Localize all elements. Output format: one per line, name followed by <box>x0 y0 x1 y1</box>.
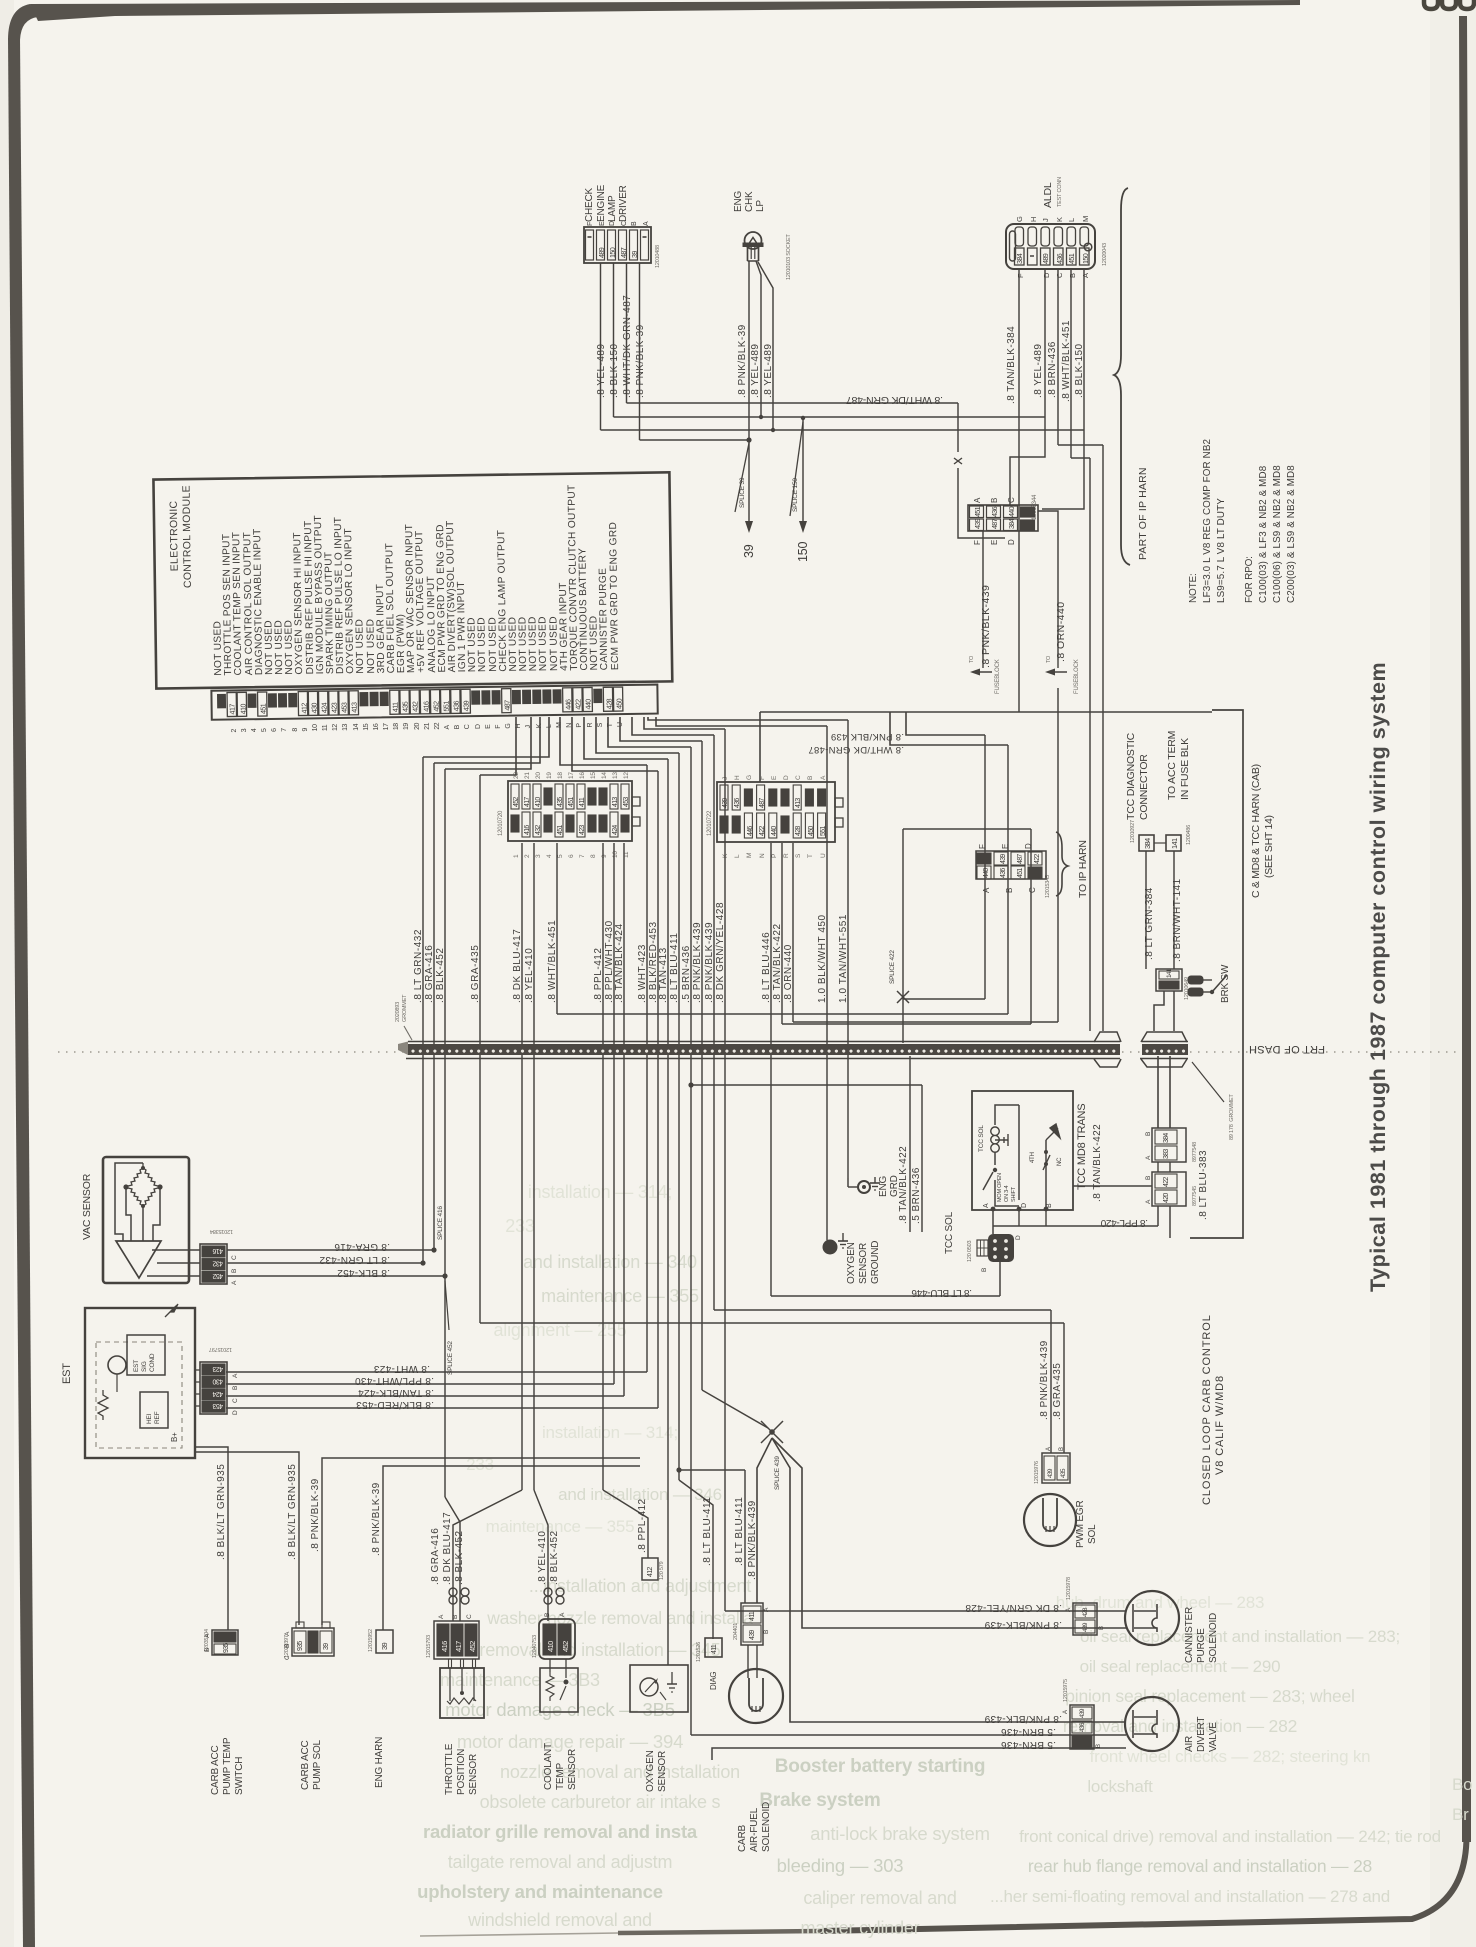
svg-text:39: 39 <box>742 544 756 558</box>
svg-text:B: B <box>1099 1626 1105 1630</box>
svg-text:10: 10 <box>312 724 319 731</box>
svg-text:150: 150 <box>796 541 810 562</box>
svg-text:12040753: 12040753 <box>532 1635 538 1658</box>
svg-text:AIR-FUEL: AIR-FUEL <box>749 1807 760 1852</box>
svg-text:.8 YEL-489: .8 YEL-489 <box>1033 344 1044 398</box>
svg-text:436: 436 <box>734 798 741 808</box>
svg-text:14: 14 <box>353 723 360 730</box>
svg-text:installation — 314;: installation — 314; <box>542 1423 678 1442</box>
svg-text:12: 12 <box>623 772 630 779</box>
svg-text:CONNECTOR: CONNECTOR <box>1138 754 1150 820</box>
svg-text:IN FUSE BLK: IN FUSE BLK <box>1179 738 1191 800</box>
svg-text:TO: TO <box>1046 655 1052 663</box>
svg-text:SPLICE 422: SPLICE 422 <box>889 950 896 984</box>
svg-text:TO: TO <box>969 655 975 663</box>
svg-text:COND: COND <box>149 1353 156 1372</box>
svg-text:440: 440 <box>1007 506 1016 517</box>
svg-text:TO IP HARN: TO IP HARN <box>1077 840 1089 898</box>
svg-text:motor damage check — 3B5: motor damage check — 3B5 <box>445 1699 675 1720</box>
svg-text:D: D <box>783 775 790 780</box>
svg-text:CANNISTER: CANNISTER <box>1184 1607 1195 1663</box>
svg-text:39: 39 <box>630 251 639 258</box>
svg-text:CONTROL MODULE: CONTROL MODULE <box>181 485 194 588</box>
svg-text:.8 BLK-452: .8 BLK-452 <box>337 1267 390 1278</box>
svg-text:.8 TAN/BLK-422: .8 TAN/BLK-422 <box>898 1146 909 1224</box>
svg-text:B: B <box>231 1269 238 1273</box>
svg-text:F: F <box>978 844 987 849</box>
svg-text:19: 19 <box>546 772 553 779</box>
svg-text:439: 439 <box>749 1630 756 1640</box>
svg-text:.8 PNK/BLK-439: .8 PNK/BLK-439 <box>980 585 992 668</box>
svg-text:384: 384 <box>1163 1133 1170 1143</box>
svg-text:caliper removal and: caliper removal and <box>803 1888 956 1908</box>
svg-text:451: 451 <box>973 506 982 517</box>
svg-text:THROTTLE: THROTTLE <box>444 1743 455 1795</box>
svg-text:439: 439 <box>973 518 982 529</box>
svg-text:7: 7 <box>579 854 586 858</box>
svg-text:422: 422 <box>759 826 766 836</box>
svg-text:452: 452 <box>432 701 441 712</box>
svg-text:416: 416 <box>422 701 431 712</box>
svg-text:.8 ORN-440: .8 ORN-440 <box>1055 601 1067 662</box>
svg-text:CHECK: CHECK <box>584 187 595 222</box>
svg-text:B: B <box>1145 1176 1152 1180</box>
svg-text:C & MD8 & TCC HARN (CAB): C & MD8 & TCC HARN (CAB) <box>1250 764 1262 898</box>
svg-text:1201526: 1201526 <box>696 1642 702 1662</box>
svg-text:.8 PNK/BLK-439: .8 PNK/BLK-439 <box>747 1500 758 1580</box>
svg-text:19: 19 <box>403 723 410 730</box>
svg-text:430: 430 <box>310 702 319 713</box>
svg-text:4: 4 <box>546 854 553 858</box>
svg-text:ON 3-4: ON 3-4 <box>1004 1185 1010 1202</box>
svg-text:20: 20 <box>414 722 421 729</box>
svg-text:.8 BRN-436: .8 BRN-436 <box>1047 341 1058 398</box>
svg-text:PURGE: PURGE <box>1196 1628 1207 1663</box>
svg-text:450: 450 <box>615 698 624 709</box>
svg-text:B: B <box>232 1386 239 1390</box>
svg-text:pinion seal replacement — 283;: pinion seal replacement — 283; wheel <box>1065 1686 1355 1706</box>
svg-text:radiator grille removal and in: radiator grille removal and insta <box>423 1821 698 1842</box>
svg-text:BRK SW: BRK SW <box>1220 964 1231 1003</box>
svg-text:M: M <box>1081 216 1090 222</box>
svg-text:.8 YEL-489: .8 YEL-489 <box>596 344 607 398</box>
svg-text:A: A <box>1063 1710 1069 1714</box>
svg-text:436: 436 <box>452 701 461 712</box>
svg-text:D: D <box>475 724 482 729</box>
svg-text:C200(03) & LS9 & NB2 & MD8: C200(03) & LS9 & NB2 & MD8 <box>1286 465 1297 603</box>
svg-text:LS9=5.7 L V8 LT DUTY: LS9=5.7 L V8 LT DUTY <box>1216 498 1227 603</box>
svg-text:410: 410 <box>239 703 248 714</box>
svg-text:B: B <box>763 1630 770 1634</box>
svg-text:39: 39 <box>323 1643 330 1650</box>
svg-text:rear hub flange removal and in: rear hub flange removal and installation… <box>1028 1856 1372 1876</box>
svg-text:.8 TAN/BLK-422: .8 TAN/BLK-422 <box>1092 1124 1103 1202</box>
svg-text:SENSOR: SENSOR <box>858 1243 869 1284</box>
svg-text:.8 GRA-435: .8 GRA-435 <box>1052 1363 1063 1420</box>
svg-text:416: 416 <box>524 825 531 835</box>
svg-text:12015384: 12015384 <box>210 1228 233 1234</box>
svg-text:.8 PNK/BLK-39: .8 PNK/BLK-39 <box>371 1482 382 1556</box>
svg-text:.8 DK BLU-417: .8 DK BLU-417 <box>442 1512 453 1585</box>
svg-text:120 0503: 120 0503 <box>967 1241 973 1262</box>
svg-text:423: 423 <box>212 1365 223 1372</box>
svg-text:B: B <box>1096 1744 1102 1748</box>
svg-text:CARB ACC: CARB ACC <box>210 1745 221 1795</box>
svg-text:416: 416 <box>212 1247 223 1254</box>
svg-text:.8 BLK-452: .8 BLK-452 <box>549 1530 560 1585</box>
svg-text:12010488: 12010488 <box>655 245 661 268</box>
svg-text:436: 436 <box>1000 868 1007 878</box>
svg-text:452: 452 <box>468 1641 477 1652</box>
svg-text:C: C <box>466 1614 473 1619</box>
svg-text:432: 432 <box>535 825 542 835</box>
svg-text:.8 LT BLU-383: .8 LT BLU-383 <box>1198 1150 1209 1220</box>
svg-text:18: 18 <box>557 772 564 779</box>
svg-text:.8 WHT-423: .8 WHT-423 <box>374 1363 430 1374</box>
svg-text:DIVERT: DIVERT <box>1196 1717 1207 1752</box>
svg-text:bleeding — 303: bleeding — 303 <box>777 1855 904 1876</box>
svg-text:SPLICE 416: SPLICE 416 <box>437 1206 444 1240</box>
svg-text:412: 412 <box>647 1567 654 1577</box>
svg-text:OXYGEN: OXYGEN <box>846 1242 857 1284</box>
svg-text:A: A <box>1081 273 1090 278</box>
svg-text:.8 BLK/RED-453: .8 BLK/RED-453 <box>356 1399 434 1410</box>
svg-text:C100(03) & LF3 & NB2 & MD8: C100(03) & LF3 & NB2 & MD8 <box>1258 465 1269 603</box>
svg-text:424: 424 <box>320 702 329 713</box>
svg-text:.8 PNK/BLK-39: .8 PNK/BLK-39 <box>635 324 646 398</box>
svg-text:SOLENOID: SOLENOID <box>1208 1613 1219 1663</box>
svg-text:487: 487 <box>990 518 999 529</box>
svg-text:C: C <box>795 775 802 780</box>
svg-text:SIG: SIG <box>141 1361 148 1372</box>
svg-text:417: 417 <box>524 797 531 807</box>
svg-text:451: 451 <box>1017 868 1024 878</box>
svg-text:.8 PPL-412: .8 PPL-412 <box>637 1498 648 1553</box>
svg-text:POSITION: POSITION <box>456 1749 467 1795</box>
svg-text:B: B <box>1059 1447 1065 1451</box>
svg-text:16: 16 <box>579 772 586 779</box>
svg-text:T: T <box>807 854 814 858</box>
svg-text:maintenance — 355: maintenance — 355 <box>486 1517 635 1536</box>
svg-text:motor damage repair — 394: motor damage repair — 394 <box>457 1731 683 1752</box>
svg-text:master cylinder: master cylinder <box>800 1918 919 1938</box>
svg-text:8: 8 <box>590 854 597 858</box>
svg-text:C: C <box>1055 272 1064 278</box>
svg-text:413: 413 <box>795 798 802 808</box>
svg-text:487: 487 <box>1017 854 1024 864</box>
svg-text:tailgate removal and adjustm: tailgate removal and adjustm <box>448 1852 673 1872</box>
svg-text:435: 435 <box>557 797 564 807</box>
svg-text:F: F <box>495 725 502 729</box>
svg-text:NOTE:: NOTE: <box>1188 573 1199 603</box>
svg-text:1: 1 <box>513 854 520 858</box>
svg-text:.8 GRA-416: .8 GRA-416 <box>430 1528 441 1585</box>
svg-text:FOR RPO:: FOR RPO: <box>1244 556 1255 603</box>
svg-text:6: 6 <box>568 854 575 858</box>
svg-text:SOLENOID: SOLENOID <box>761 1802 772 1852</box>
svg-text:141: 141 <box>1166 968 1173 978</box>
svg-text:H: H <box>734 775 741 780</box>
svg-text:432: 432 <box>411 701 420 712</box>
svg-text:B+: B+ <box>170 1432 179 1442</box>
svg-text:D: D <box>1015 1235 1022 1240</box>
svg-text:E: E <box>1001 844 1010 849</box>
svg-text:12010722: 12010722 <box>707 810 713 836</box>
svg-text:439: 439 <box>462 700 471 711</box>
svg-text:16: 16 <box>373 723 380 730</box>
svg-text:maintenance — 355: maintenance — 355 <box>541 1286 699 1306</box>
svg-text:12010927: 12010927 <box>1130 820 1136 843</box>
svg-text:GROUND: GROUND <box>870 1241 881 1284</box>
svg-text:435: 435 <box>401 701 410 712</box>
svg-text:15: 15 <box>590 772 597 779</box>
svg-text:.8 LT GRN-432: .8 LT GRN-432 <box>319 1254 390 1265</box>
svg-text:DRIVER: DRIVER <box>618 185 629 222</box>
svg-text:.8 YEL-410: .8 YEL-410 <box>537 1531 548 1585</box>
svg-text:428: 428 <box>795 826 802 836</box>
svg-text:420: 420 <box>1163 1193 1170 1203</box>
svg-text:ELECTRONIC: ELECTRONIC <box>168 500 181 571</box>
svg-text:935: 935 <box>297 1641 304 1651</box>
svg-text:L: L <box>1067 218 1076 222</box>
svg-text:422: 422 <box>1034 854 1041 864</box>
svg-text:9: 9 <box>601 854 608 858</box>
svg-text:F: F <box>587 222 594 226</box>
svg-text:DIAG: DIAG <box>709 1672 718 1690</box>
svg-text:.8 BLK/LT GRN-935: .8 BLK/LT GRN-935 <box>216 1464 227 1560</box>
svg-text:A: A <box>983 1203 990 1208</box>
svg-text:TEMP: TEMP <box>555 1762 566 1790</box>
svg-text:411: 411 <box>579 797 586 807</box>
svg-text:12015975: 12015975 <box>1063 1679 1069 1702</box>
svg-text:10: 10 <box>612 851 619 858</box>
svg-text:.8 LT BLU-446: .8 LT BLU-446 <box>911 1287 972 1298</box>
svg-text:N: N <box>759 853 766 858</box>
svg-text:12015797: 12015797 <box>209 1346 232 1352</box>
svg-text:A: A <box>973 497 982 503</box>
svg-text:422: 422 <box>574 699 583 710</box>
svg-text:V8 CALIF W/MD8: V8 CALIF W/MD8 <box>1214 1375 1226 1475</box>
svg-text:maintenance — 3B3: maintenance — 3B3 <box>440 1670 600 1690</box>
svg-text:K: K <box>1055 217 1064 222</box>
svg-text:3: 3 <box>535 854 542 858</box>
svg-text:450: 450 <box>808 826 815 836</box>
svg-text:A: A <box>1046 1447 1052 1451</box>
svg-text:FUSEBLOCK: FUSEBLOCK <box>1074 659 1080 694</box>
svg-text:21: 21 <box>524 772 531 779</box>
svg-text:H: H <box>1029 217 1038 222</box>
svg-text:SPLICE 452: SPLICE 452 <box>447 1341 454 1375</box>
svg-text:LP: LP <box>755 200 766 212</box>
svg-text:416: 416 <box>440 1641 449 1652</box>
svg-text:NC: NC <box>1057 1157 1063 1166</box>
svg-text:.8 PNK/BLK 439: .8 PNK/BLK 439 <box>831 731 904 742</box>
svg-text:451: 451 <box>1067 253 1076 264</box>
svg-text:J: J <box>1041 218 1050 222</box>
svg-text:G: G <box>505 724 512 729</box>
svg-text:17: 17 <box>568 772 575 779</box>
svg-text:COOLANT: COOLANT <box>543 1743 554 1790</box>
svg-text:.8 TAN/BLK-424: .8 TAN/BLK-424 <box>358 1387 434 1398</box>
svg-text:L: L <box>734 854 741 858</box>
svg-text:423: 423 <box>330 702 339 713</box>
svg-text:B: B <box>990 498 999 503</box>
svg-text:front conical drive) removal a: front conical drive) removal and install… <box>1019 1827 1441 1846</box>
svg-text:.8 PNK/BLK-39: .8 PNK/BLK-39 <box>310 1478 321 1552</box>
svg-text:384: 384 <box>1015 253 1024 264</box>
svg-text:12015978: 12015978 <box>1066 1577 1072 1600</box>
svg-text:452: 452 <box>561 1641 570 1652</box>
svg-text:Bo: Bo <box>1452 1775 1472 1794</box>
svg-text:SENSOR: SENSOR <box>468 1754 479 1795</box>
svg-text:SPLICE 39: SPLICE 39 <box>739 477 746 508</box>
svg-text:428: 428 <box>1082 1607 1089 1617</box>
svg-text:13: 13 <box>612 772 619 779</box>
svg-text:440: 440 <box>983 868 990 878</box>
svg-text:12015976: 12015976 <box>1034 1461 1040 1484</box>
svg-text:451: 451 <box>557 825 564 835</box>
svg-text:17: 17 <box>383 723 390 730</box>
svg-text:.8 BLK-452: .8 BLK-452 <box>454 1530 465 1585</box>
svg-text:551: 551 <box>442 701 451 712</box>
svg-text:oil seal replacement — 290: oil seal replacement — 290 <box>1080 1657 1281 1676</box>
svg-text:B: B <box>807 776 814 780</box>
svg-text:TCC SOL: TCC SOL <box>978 1125 985 1152</box>
svg-text:141: 141 <box>1170 838 1179 849</box>
svg-text:and installation — 340: and installation — 340 <box>523 1252 697 1272</box>
svg-text:20: 20 <box>535 772 542 779</box>
svg-text:M: M <box>746 853 753 858</box>
svg-text:U: U <box>820 853 827 858</box>
svg-text:anti-lock brake system: anti-lock brake system <box>810 1823 990 1844</box>
svg-text:233: 233 <box>505 1216 535 1236</box>
svg-text:204401: 204401 <box>733 1623 739 1640</box>
svg-text:ENG HARN: ENG HARN <box>374 1737 385 1788</box>
svg-text:D: D <box>1024 843 1033 849</box>
svg-text:411: 411 <box>749 1611 756 1621</box>
svg-text:439: 439 <box>1082 1622 1089 1632</box>
svg-text:120 579: 120 579 <box>659 1561 665 1580</box>
svg-text:.8 TAN/BLK-384: .8 TAN/BLK-384 <box>1006 326 1017 404</box>
svg-text:(SEE SHT 14): (SEE SHT 14) <box>1263 815 1275 878</box>
svg-text:487: 487 <box>759 798 766 808</box>
svg-text:.8 PNK/BLK-39: .8 PNK/BLK-39 <box>737 324 748 398</box>
svg-text:LAMP: LAMP <box>607 195 618 222</box>
svg-text:384: 384 <box>1007 518 1016 529</box>
svg-text:AIR: AIR <box>1184 1736 1195 1752</box>
svg-text:451: 451 <box>568 797 575 807</box>
svg-text:PUMP TEMP: PUMP TEMP <box>222 1737 233 1795</box>
svg-text:A: A <box>982 887 991 893</box>
svg-text:489: 489 <box>1041 253 1050 264</box>
svg-text:89 178 GROMMET: 89 178 GROMMET <box>1229 1094 1235 1140</box>
svg-text:C100(06) & LS9 & NB2 & MD8: C100(06) & LS9 & NB2 & MD8 <box>1272 465 1283 603</box>
svg-text:front wheel checks — 282; stee: front wheel checks — 282; steering kn <box>1090 1747 1371 1766</box>
svg-text:SPLICE 439: SPLICE 439 <box>774 1456 781 1490</box>
svg-text:413: 413 <box>612 797 619 807</box>
svg-text:A: A <box>1066 1608 1072 1612</box>
svg-text:.8 GRA-416: .8 GRA-416 <box>334 1241 390 1252</box>
svg-text:TO ACC TERM: TO ACC TERM <box>1166 731 1178 800</box>
svg-text:452: 452 <box>513 797 520 807</box>
svg-text:B: B <box>1145 1132 1152 1136</box>
svg-text:B: B <box>1005 888 1014 893</box>
svg-text:413: 413 <box>350 702 359 713</box>
svg-text:R: R <box>783 853 790 858</box>
svg-text:.8 BLK/LT GRN-935: .8 BLK/LT GRN-935 <box>287 1464 298 1560</box>
svg-text:39: 39 <box>380 1643 389 1650</box>
svg-text:13: 13 <box>342 723 349 730</box>
svg-text:423: 423 <box>579 825 586 835</box>
svg-text:436: 436 <box>1055 253 1064 264</box>
svg-text:439: 439 <box>1079 1708 1086 1718</box>
svg-text:PART OF IP HARN: PART OF IP HARN <box>1137 467 1149 560</box>
svg-text:.8 YEL-489: .8 YEL-489 <box>750 344 761 398</box>
svg-text:D: D <box>232 1410 239 1415</box>
svg-text:OXYGEN: OXYGEN <box>645 1750 656 1792</box>
svg-text:12: 12 <box>332 724 339 731</box>
svg-text:.5 BRN-436: .5 BRN-436 <box>1001 1726 1056 1737</box>
svg-text:.5 BRN-436: .5 BRN-436 <box>1001 1739 1056 1750</box>
svg-text:installation — 314;: installation — 314; <box>528 1182 672 1202</box>
svg-text:D: D <box>609 221 616 226</box>
svg-text:C: C <box>1028 887 1037 893</box>
svg-text:21: 21 <box>424 722 431 729</box>
svg-text:.8 LT GRN-384: .8 LT GRN-384 <box>1144 887 1155 960</box>
svg-text:FRT OF DASH: FRT OF DASH <box>1249 1043 1325 1055</box>
svg-text:453: 453 <box>623 797 630 807</box>
svg-text:440: 440 <box>771 826 778 836</box>
svg-text:upholstery and maintenance: upholstery and maintenance <box>417 1881 663 1902</box>
svg-text:2020893: 2020893 <box>395 1002 401 1022</box>
svg-text:C: C <box>464 724 471 729</box>
svg-text:A: A <box>643 221 650 226</box>
svg-text:VALVE: VALVE <box>1208 1722 1219 1752</box>
svg-text:.8 BRN/WHT-141: .8 BRN/WHT-141 <box>1172 878 1183 962</box>
svg-text:windshield removal and: windshield removal and <box>467 1910 652 1930</box>
svg-text:.8 LT BLU-411: .8 LT BLU-411 <box>702 1497 713 1566</box>
svg-text:LF3=3.0 L V8 REG COMP FOR NB2: LF3=3.0 L V8 REG COMP FOR NB2 <box>1202 439 1213 603</box>
svg-text:C: C <box>284 1655 291 1660</box>
svg-text:451: 451 <box>259 703 268 714</box>
svg-text:.8 PPL-420: .8 PPL-420 <box>1100 1217 1148 1228</box>
svg-text:11: 11 <box>322 724 329 731</box>
svg-text:B: B <box>981 1268 988 1272</box>
svg-text:obsolete carburetor air intake: obsolete carburetor air intake s <box>480 1792 721 1812</box>
svg-text:ENG: ENG <box>878 1176 889 1197</box>
svg-text:SENSOR: SENSOR <box>567 1749 578 1790</box>
svg-text:12010720: 12010720 <box>498 810 504 836</box>
svg-text:384: 384 <box>1143 838 1152 849</box>
svg-text:SHIFT: SHIFT <box>1011 1186 1017 1202</box>
svg-text:NOT USED: NOT USED <box>354 619 366 674</box>
svg-text:TCC DIAGNOSTIC: TCC DIAGNOSTIC <box>1125 732 1137 820</box>
svg-text:G: G <box>746 775 753 780</box>
svg-text:ENG: ENG <box>733 191 744 212</box>
svg-text:430: 430 <box>212 1377 223 1384</box>
svg-text:B: B <box>631 221 638 226</box>
svg-text:489: 489 <box>597 247 606 258</box>
svg-text:14: 14 <box>601 772 608 779</box>
svg-text:417: 417 <box>228 704 237 715</box>
svg-text:F: F <box>973 540 982 545</box>
svg-text:150: 150 <box>608 247 617 258</box>
svg-text:SWITCH: SWITCH <box>234 1757 245 1795</box>
svg-text:446: 446 <box>747 826 754 836</box>
svg-text:Typical 1981 through 1987 comp: Typical 1981 through 1987 computer contr… <box>1366 662 1390 1292</box>
svg-text:EST: EST <box>61 1363 73 1384</box>
svg-text:B: B <box>284 1644 291 1648</box>
